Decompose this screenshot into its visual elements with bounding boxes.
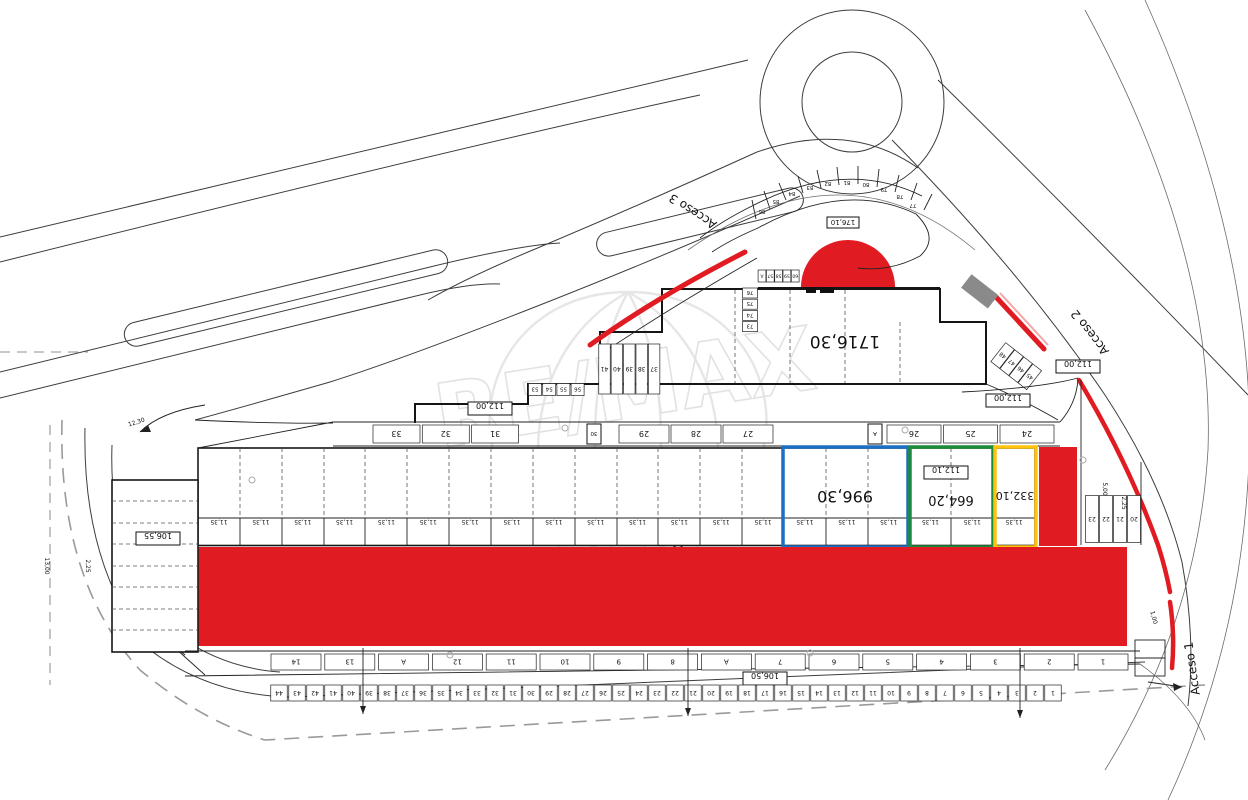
stall-number: 4 (939, 657, 944, 665)
stall-number: 11,35 (252, 518, 269, 525)
stall-number: 11,35 (712, 518, 729, 525)
stall-number: 86 (758, 208, 765, 214)
stall-number: 41 (601, 365, 609, 372)
stall-number: 10 (887, 689, 895, 696)
stall-number: 41 (329, 689, 337, 696)
stall-number: 42 (311, 689, 319, 696)
stall-number: 7 (778, 657, 782, 665)
stall-number: 13 (833, 689, 841, 696)
stall-number: 11,35 (336, 518, 353, 525)
dimension-arrows (360, 706, 1023, 718)
stall-number: 29 (639, 429, 649, 438)
acceso-1-label: Acceso 1 (1181, 641, 1202, 696)
stall-number: 24 (635, 689, 643, 696)
stall-number: 77 (909, 202, 916, 208)
center-stalls-37-41: 4140393837 (599, 344, 660, 394)
stall-number: 11,35 (796, 518, 813, 525)
stall-number: 23 (653, 689, 661, 696)
left-parking-block: 106,55 (112, 448, 198, 652)
stall-number: 11,35 (587, 518, 604, 525)
red-unit (1039, 447, 1077, 546)
site-plan-screenshot: RE/MAX ® (0, 0, 1248, 800)
stall-number: 56 (574, 386, 581, 392)
stall-number: 80 (862, 181, 869, 187)
diagonal-stalls-45-48: 48474645 (991, 343, 1042, 390)
stall-number: 38 (638, 365, 646, 372)
stall-number: 31 (509, 689, 517, 696)
stall-number: 73 (746, 323, 753, 329)
stall-number: 11,35 (922, 518, 939, 525)
stall-number: 74 (746, 311, 753, 317)
stall-number: 7 (943, 689, 947, 696)
stall-number: 27 (581, 689, 589, 696)
stall-number: 11,35 (503, 518, 520, 525)
stall-number: 43 (293, 689, 301, 696)
stall-number: 32 (491, 689, 499, 696)
stall-number: 1 (1101, 657, 1105, 665)
stall-number: 39 (625, 365, 633, 372)
stall-number: 44 (275, 689, 283, 696)
gray-kiosk (961, 274, 998, 308)
stall-number: 14 (815, 689, 823, 696)
stall-number: 11 (869, 689, 877, 696)
strip-cell-small: 30 (590, 430, 597, 436)
arc-area-label: 176,10 (831, 218, 856, 226)
stall-number: 76 (746, 289, 753, 295)
stall-number: 2 (1033, 689, 1037, 696)
stall-number: 11,35 (461, 518, 478, 525)
stall-number: 25 (965, 429, 975, 438)
acceso-2-label: Acceso 2 (1068, 307, 1112, 358)
stall-number: 31 (490, 429, 500, 438)
stall-number: 57 (767, 272, 773, 278)
stall-number: 6 (961, 689, 965, 696)
dim-112-b: 112,00 (994, 393, 1022, 402)
stall-number: 28 (691, 429, 701, 438)
stall-number: 34 (455, 689, 463, 696)
dim-112-a: 112,00 (476, 401, 504, 410)
stall-number: 11,35 (545, 518, 562, 525)
bottom-block-label: 106,50 (751, 671, 779, 680)
stall-number: 9 (907, 689, 911, 696)
stall-number: 85 (772, 198, 779, 204)
stall-number: 26 (599, 689, 607, 696)
stall-number: 5 (979, 689, 983, 696)
stall-number: 59 (784, 272, 790, 278)
stall-number: 60 (792, 272, 798, 278)
stall-number: 39 (365, 689, 373, 696)
stall-number: 79 (880, 186, 887, 192)
stall-number: 37 (650, 365, 658, 372)
stall-number: 10 (561, 657, 570, 665)
acceso-3-label: Acceso 3 (667, 191, 720, 232)
stall-number: 17 (761, 689, 769, 696)
stall-number: 36 (419, 689, 427, 696)
stall-number: 9 (617, 657, 621, 665)
left-block-label: 106,55 (144, 531, 172, 540)
stall-number: 11,35 (964, 518, 981, 525)
dim-text: 1,00 (1148, 610, 1158, 625)
stall-number: 22 (1102, 515, 1110, 522)
stall-number: 13 (345, 657, 354, 665)
stall-number: 38 (383, 689, 391, 696)
stalls-73-76: 76757473 (743, 288, 758, 332)
stall-number: 29 (545, 689, 553, 696)
green-area-label: 664,20 (928, 492, 974, 507)
stall-number: 3 (993, 657, 997, 665)
stall-number: 11,35 (671, 518, 688, 525)
red-area-rect (198, 547, 1127, 646)
stall-number: 11,35 (294, 518, 311, 525)
stall-number: 1 (1051, 689, 1055, 696)
stall-number: 11 (507, 657, 516, 665)
stall-number: 11,35 (1005, 518, 1022, 525)
yellow-area-label: 332,10 (996, 489, 1035, 502)
strip-cell-small: A (873, 430, 877, 436)
stall-number: 11,35 (419, 518, 436, 525)
stall-number: 30 (527, 689, 535, 696)
stalls-57-60: A57585960 (758, 270, 799, 282)
stall-number: 20 (707, 689, 715, 696)
stall-number: 20 (1130, 515, 1138, 522)
stall-number: 83 (806, 184, 813, 190)
stall-number: 11,35 (629, 518, 646, 525)
stall-number: 18 (743, 689, 751, 696)
building-area-label: 1716,30 (810, 331, 880, 351)
stall-number: 16 (779, 689, 787, 696)
stall-number: 25 (617, 689, 625, 696)
stall-number: 26 (909, 429, 919, 438)
dim-text: 13,00 (43, 557, 50, 574)
green-inner-label: 112,10 (932, 465, 960, 474)
stall-number: 8 (925, 689, 929, 696)
stall-number: 21 (1116, 515, 1124, 522)
blue-area-label: 996,30 (817, 487, 873, 506)
stall-number: 19 (725, 689, 733, 696)
stall-number: 40 (347, 689, 355, 696)
dim-112-c: 112,00 (1064, 359, 1092, 368)
stall-number: A (724, 657, 729, 665)
stall-number: 75 (746, 300, 753, 306)
stall-number: 11,35 (838, 518, 855, 525)
stall-number: 82 (825, 180, 832, 186)
stall-number: 27 (743, 429, 753, 438)
stall-number: 33 (391, 429, 401, 438)
stall-number: 24 (1022, 429, 1032, 438)
stall-number: 54 (545, 386, 552, 392)
stall-number: 23 (1088, 515, 1096, 522)
entrance-arrow (1173, 683, 1182, 691)
stall-number: 55 (559, 386, 566, 392)
red-semicircle (801, 240, 895, 287)
stall-number: 11,35 (754, 518, 771, 525)
stall-number: 2 (1047, 657, 1051, 665)
stall-number: 12 (851, 689, 859, 696)
stall-number: 8 (670, 657, 674, 665)
entry-arrow-topleft (140, 405, 205, 432)
stall-number: 11,35 (880, 518, 897, 525)
stall-number: 81 (844, 179, 851, 185)
stall-number: 14 (291, 657, 300, 665)
bottom-parking-rows: 1413A12111098A7654321 106,50 44434241403… (185, 648, 1140, 718)
stall-number: A (401, 657, 406, 665)
stall-number: 6 (831, 657, 836, 665)
dim-text: 12,30 (127, 417, 146, 429)
stall-number: 4 (997, 689, 1001, 696)
stall-number: 28 (563, 689, 571, 696)
stall-number: 40 (613, 365, 621, 372)
stall-number: 84 (788, 190, 795, 196)
dim-text: 2,25 (84, 559, 91, 573)
site-plan-drawing: RE/MAX ® (0, 0, 1248, 800)
stall-number: 21 (689, 689, 697, 696)
red-area: 1192,00 (127, 547, 1127, 646)
stall-number: 12 (453, 657, 462, 665)
stall-number: 32 (441, 429, 451, 438)
dim-text: 5,00 (1101, 482, 1108, 496)
dim-text: 2,25 (1120, 496, 1127, 510)
stall-number: 78 (896, 193, 903, 199)
stall-number: 3 (1015, 689, 1019, 696)
stall-number: 58 (776, 272, 782, 278)
stall-number: 11,35 (210, 518, 227, 525)
stall-number: 5 (886, 657, 890, 665)
stall-number: 35 (437, 689, 445, 696)
median-island (122, 247, 450, 348)
stall-number: 15 (797, 689, 805, 696)
stall-number: 53 (531, 386, 538, 392)
stall-number: 22 (671, 689, 679, 696)
stall-number: 11,35 (378, 518, 395, 525)
stall-number: 37 (401, 689, 409, 696)
stall-number: 33 (473, 689, 481, 696)
